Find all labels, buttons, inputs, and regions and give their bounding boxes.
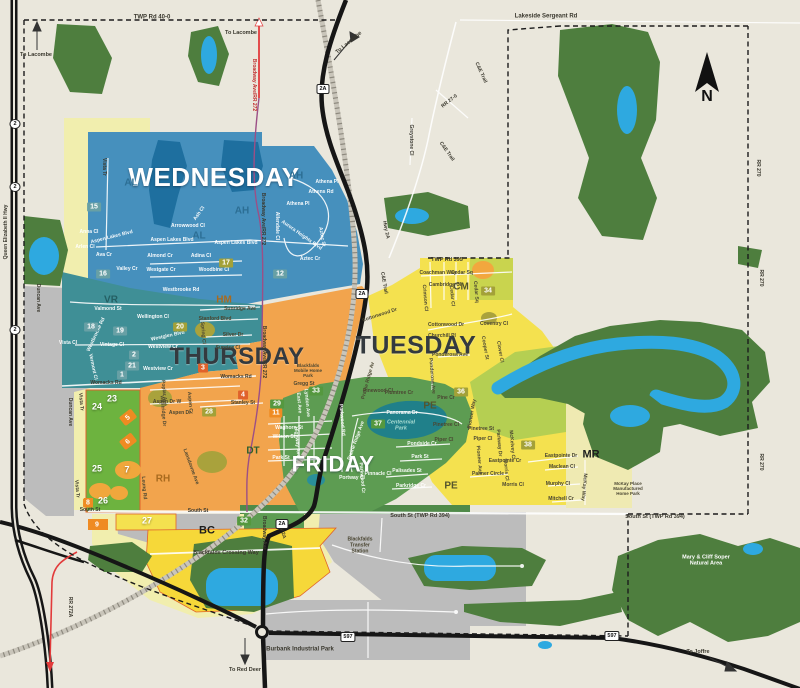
map-canvas: [0, 0, 800, 688]
blackfalds-zone-map: WEDNESDAYTHURSDAYTUESDAYFRIDAYALAHAHALVR…: [0, 0, 800, 688]
roundabout: [257, 627, 268, 638]
zone-green-parcels: [84, 390, 141, 530]
